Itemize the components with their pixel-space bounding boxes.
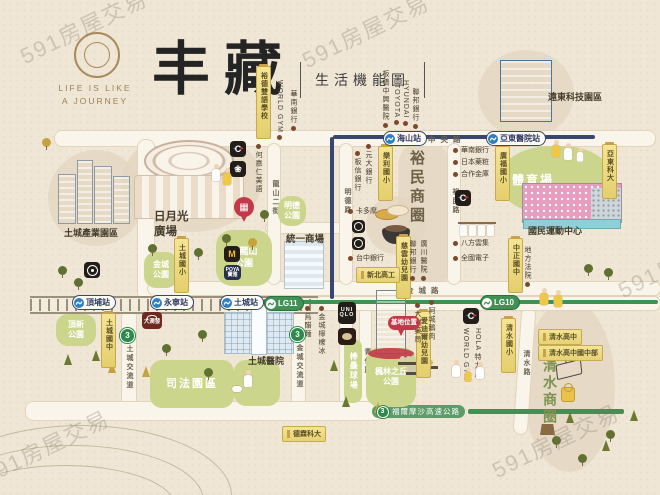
tree-icon (92, 350, 100, 361)
station-lg11: LG11 (264, 296, 304, 311)
poya-icon: POYA寶雅 (224, 265, 241, 280)
school-delin-uni: 德霖科大 (282, 426, 326, 442)
tree-icon (602, 440, 610, 451)
shopping-bag-illustration (562, 388, 574, 401)
formosa-freeway-band: 3 福爾摩沙高速公路 (372, 405, 465, 418)
louisa-coffee-icon (338, 328, 356, 345)
carrefour-icon: ◂C▸ (230, 141, 246, 157)
poi-taichung-bank: 台中銀行 (348, 255, 384, 262)
freeway-label: 福爾摩沙高速公路 (392, 406, 460, 417)
poi-world-gym: WORLD GYM (276, 80, 283, 140)
metro-logo-icon (385, 134, 395, 144)
shop-icon (352, 220, 365, 233)
school-guangfu: 廣福國小 (495, 146, 510, 201)
ballpark: 棒壘球場 (344, 339, 362, 403)
metro-logo-icon (74, 298, 84, 308)
poi-huanan-bank-2: 華南銀行 (453, 147, 489, 154)
judicial-park: 司法園區 (150, 360, 234, 408)
building-glyph-icon: ▦ (239, 202, 248, 213)
poi-bafang: 八方雲集 (453, 240, 489, 247)
poi-district-court: 地方法院 (524, 246, 531, 287)
metro-line-blue-v (330, 137, 334, 299)
school-qingshui-hs: 清水高中 (538, 329, 582, 345)
carrefour-icon: ◂C▸ (463, 308, 479, 324)
poi-dot (453, 256, 458, 261)
site-location-pin: 基地位置 (388, 316, 420, 330)
brand-motto: LIFE IS LIKE A JOURNEY (40, 82, 150, 108)
px-mart-icon: ❀ (230, 161, 246, 177)
poi-dot (415, 303, 420, 308)
poi-coop-bank: 合作金庫 (453, 171, 489, 178)
lg-line-green (252, 300, 658, 304)
poi-dot (355, 151, 360, 156)
tree-icon (260, 210, 269, 219)
label-sun-plaza: 日月光廣場 (154, 210, 194, 240)
life-function-map: LIFE IS LIKE A JOURNEY 丰藏 生活機能圖 3 福爾摩沙高速… (0, 0, 660, 495)
school-xinbei-vhs: 新北高工 (356, 267, 400, 283)
tree-icon (162, 344, 171, 353)
park-mingde: 明德公園 (278, 196, 306, 226)
tree-icon (142, 366, 150, 377)
page-title: 丰藏 (152, 22, 296, 106)
tree-icon (148, 244, 157, 253)
poi-jp-drugstore: 日本藥粧 (453, 159, 489, 166)
poi-dot (256, 144, 261, 149)
poi-dot (453, 148, 458, 153)
school-tucheng-jh: 土城國中 (101, 313, 116, 368)
tree-icon (58, 266, 67, 275)
poi-dot (291, 126, 296, 131)
poi-dot (348, 256, 353, 261)
metro-logo-icon (152, 298, 162, 308)
poi-banxin-bank: 板信銀行 (354, 151, 361, 192)
tree-icon (42, 138, 51, 147)
poi-dot (453, 241, 458, 246)
poi-huanan-bank: 華南銀行 (290, 90, 297, 131)
tree-icon (578, 454, 587, 463)
tucheng-hospital-building (224, 312, 294, 354)
station-lg10: LG10 (480, 295, 520, 310)
tree-icon (204, 368, 213, 377)
poi-dot (394, 120, 399, 125)
tree-icon (248, 238, 257, 247)
poi-lemon-ice: 金城檸檬冰 (318, 306, 325, 356)
poi-toyota: TOYOTA (393, 84, 400, 125)
poi-dot (277, 135, 282, 140)
metro-logo-icon (222, 298, 232, 308)
road-label-qingshui: 清水路 (521, 350, 531, 377)
mcdonalds-icon: M (224, 246, 240, 262)
label-yumin-district: 裕民商圈 (406, 150, 427, 226)
tree-icon (194, 248, 203, 257)
tree-icon (74, 278, 83, 287)
tree-icon (342, 396, 350, 407)
poi-union-bank: 聯邦銀行 (412, 88, 419, 129)
poi-wucu-noodle: 烏醋麵 (304, 306, 311, 339)
school-yude: 裕德雙語學校 (256, 66, 271, 139)
station-haishan: 海山站 (383, 131, 427, 146)
poi-dot (348, 209, 353, 214)
station-dingpu: 頂埔站 (72, 295, 116, 310)
poi-dot (305, 306, 310, 311)
poi-yuanta-bank: 元大銀行 (365, 144, 372, 185)
rt-mart-icon: 大潤發 (142, 312, 162, 329)
label-fareast-tech: 遠東科技園區 (548, 90, 602, 103)
poi-dot (383, 123, 388, 128)
school-zhongzheng-jh: 中正國中 (508, 238, 523, 293)
poi-dot (366, 144, 371, 149)
poi-hyundai: HYUNDAI (402, 80, 409, 126)
poi-dot (421, 276, 426, 281)
metro-logo-icon (266, 299, 276, 309)
metro-logo-icon (488, 134, 498, 144)
freeway-shield-icon: 3 (290, 327, 305, 342)
road-label-jincheng: 金城路 (406, 285, 444, 296)
park-jincheng: 金城公園 (144, 252, 178, 288)
poi-zhongxing-hospital: 板橋中興醫院 (382, 70, 389, 128)
poi-kadomo: 卡多摩 (348, 208, 377, 215)
station-tucheng: 土城站 (220, 295, 264, 310)
school-leli: 樂利國小 (378, 146, 393, 201)
store-emblem-icon (84, 262, 100, 278)
poi-acheng-goose: 阿城鵝肉 (428, 300, 435, 341)
tree-icon (330, 360, 338, 371)
label-sports-center: 國民運動中心 (528, 224, 582, 237)
poi-dot (453, 172, 458, 177)
school-qingshui-hs-jh: 清水高中國中部 (538, 345, 603, 361)
station-yadong-hospital: 亞東醫院站 (486, 131, 546, 146)
tree-icon (198, 330, 207, 339)
poi-dot (429, 300, 434, 305)
carrefour-icon: ◂C▸ (455, 190, 471, 206)
label-industrial-park: 土城產業園區 (64, 226, 118, 239)
metro-logo-icon (482, 298, 492, 308)
poi-dot (319, 306, 324, 311)
uni-mall-building (284, 241, 324, 289)
industrial-park-buildings (58, 160, 138, 224)
poi-dot (410, 276, 415, 281)
label-uni-mall: 統一商場 (286, 231, 324, 245)
label-qingshui-district: 清水商圈 (540, 358, 560, 426)
label-jincheng-interchange: 金城交流道 (294, 344, 304, 389)
poi-guangchuan-hospital: 廣川醫院 (420, 240, 427, 281)
label-tucheng-interchange: 土城交流道 (124, 345, 134, 390)
school-tucheng-elem: 土城國小 (174, 238, 189, 293)
tree-icon (64, 354, 72, 365)
school-yadong-uni: 亞東科大 (602, 144, 617, 199)
label-tucheng-hospital: 土城醫院 (248, 354, 284, 367)
tree-icon (584, 264, 593, 273)
freeway-shield-icon: 3 (377, 406, 389, 418)
uniqlo-icon: UNIQLO (338, 302, 356, 324)
poi-dot (403, 121, 408, 126)
fareast-tech-building (500, 60, 552, 122)
poi-elife: 全國電子 (453, 255, 489, 262)
tree-icon (222, 234, 231, 243)
station-yongning: 永寧站 (150, 295, 194, 310)
poi-union-bank-2: 聯邦銀行 (409, 240, 416, 281)
tree-icon (630, 410, 638, 421)
school-qingshui-elem: 清水國小 (501, 318, 516, 373)
road-label-zhongyang: 中央路 (428, 134, 466, 145)
freeway-shield-icon: 3 (120, 328, 135, 343)
poi-dot (525, 282, 530, 287)
poi-hess: 何嘉仁美語 (255, 144, 262, 194)
poi-dot (453, 160, 458, 165)
shop-icon (352, 237, 365, 250)
building-pin: ▦ (234, 197, 254, 217)
poi-dot (413, 124, 418, 129)
park-dingxin: 頂新公園 (56, 314, 96, 346)
